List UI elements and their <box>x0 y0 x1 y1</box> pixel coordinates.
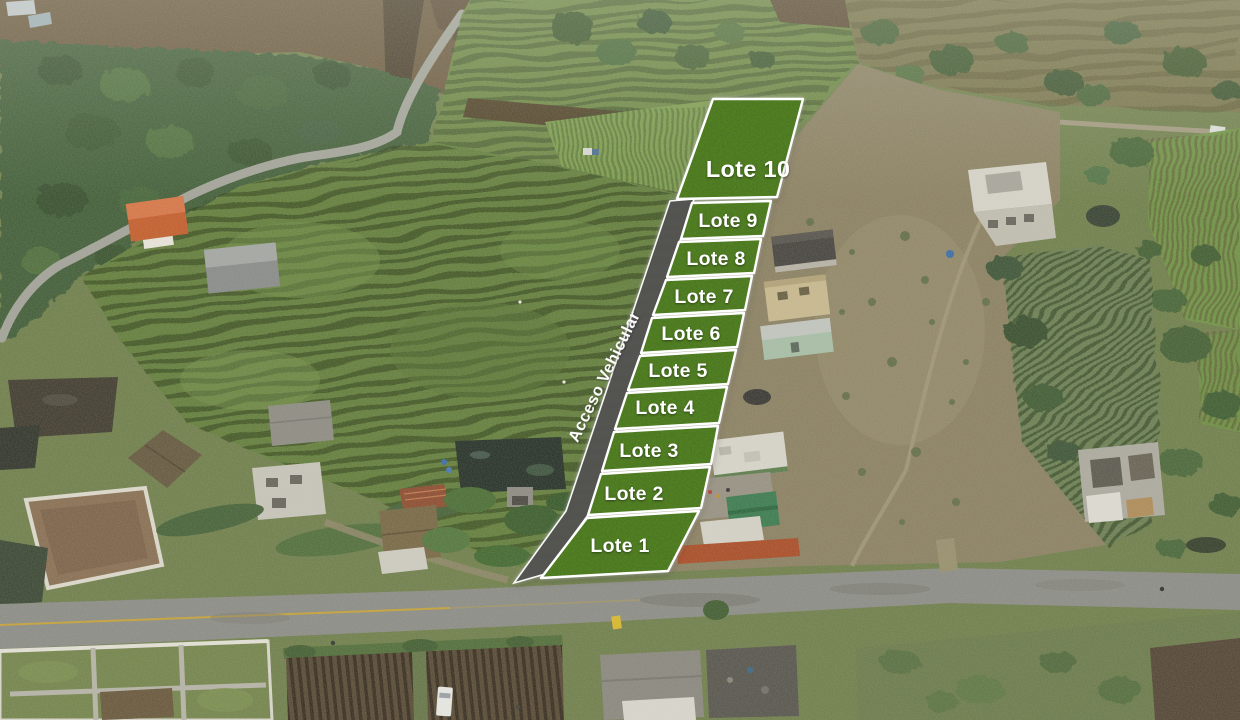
lot-7-label: Lote 7 <box>674 286 733 308</box>
lot-1-label: Lote 1 <box>590 535 649 557</box>
lot-6-label: Lote 6 <box>661 323 720 345</box>
lot-4-label: Lote 4 <box>635 397 694 419</box>
lot-8-label: Lote 8 <box>686 248 745 270</box>
aerial-photo: Lote 1 Lote 2 Lote 3 Lote 4 Lote 5 Lote … <box>0 0 1240 720</box>
lot-5-label: Lote 5 <box>648 360 707 382</box>
lot-3-label: Lote 3 <box>619 440 678 462</box>
lot-10-label: Lote 10 <box>706 156 790 182</box>
lot-9-label: Lote 9 <box>698 210 757 232</box>
lot-2-label: Lote 2 <box>604 483 663 505</box>
